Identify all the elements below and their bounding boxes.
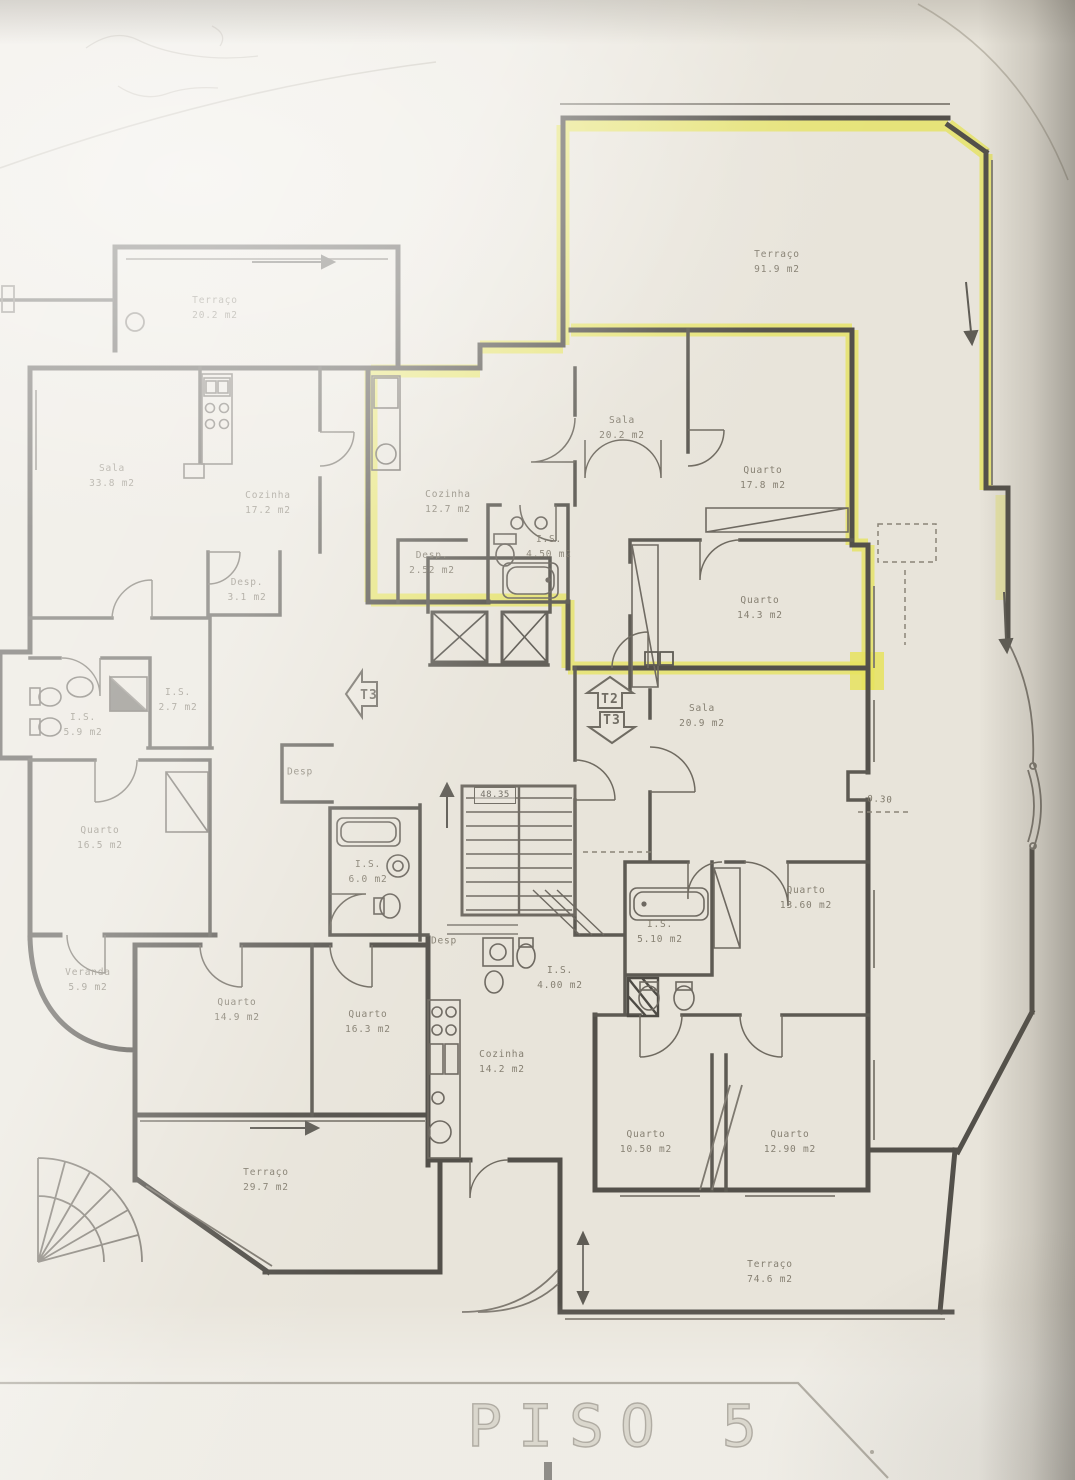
room-name: Terraço	[243, 1165, 289, 1180]
room-area: 2.7 m2	[158, 700, 197, 715]
room-area: 33.8 m2	[89, 476, 135, 491]
room-label: Cozinha 17.2 m2	[245, 488, 291, 518]
room-area: 17.8 m2	[740, 478, 786, 493]
room-name: Desp	[431, 933, 457, 948]
room-label: Sala 20.9 m2	[679, 701, 725, 731]
room-label: Sala 20.2 m2	[599, 413, 645, 443]
room-name: Quarto	[214, 995, 260, 1010]
room-label: Quarto 13.60 m2	[780, 883, 832, 913]
room-area: 74.6 m2	[747, 1272, 793, 1287]
room-area: 16.3 m2	[345, 1022, 391, 1037]
room-name: Quarto	[737, 593, 783, 608]
room-name: Terraço	[192, 293, 238, 308]
room-name: Sala	[599, 413, 645, 428]
room-name: Quarto	[345, 1007, 391, 1022]
room-name: I.S.	[158, 685, 197, 700]
room-label: Quarto 16.5 m2	[77, 823, 123, 853]
room-name: Quarto	[780, 883, 832, 898]
room-area: 5.9 m2	[65, 980, 111, 995]
room-area: 16.5 m2	[77, 838, 123, 853]
room-label: Desp	[287, 764, 313, 779]
room-name: Cozinha	[479, 1047, 525, 1062]
floorplan-photo: T3T2T3 Terraço 20.2 m2 Terraço 91.9 m2 S…	[0, 0, 1075, 1480]
room-label: Desp. 2.52 m2	[409, 548, 455, 578]
room-name: I.S.	[63, 710, 102, 725]
room-name: I.S.	[637, 917, 683, 932]
room-label: Terraço 91.9 m2	[754, 247, 800, 277]
room-area: 91.9 m2	[754, 262, 800, 277]
dimension-label: 0.30	[860, 794, 900, 806]
room-name: Cozinha	[245, 488, 291, 503]
room-name: Quarto	[620, 1127, 672, 1142]
room-area: 5.10 m2	[637, 932, 683, 947]
room-label: Quarto 10.50 m2	[620, 1127, 672, 1157]
room-label: I.S. 6.0 m2	[348, 857, 387, 887]
room-area: 14.3 m2	[737, 608, 783, 623]
room-label: Sala 33.8 m2	[89, 461, 135, 491]
room-label: Terraço 20.2 m2	[192, 293, 238, 323]
room-label: Cozinha 12.7 m2	[425, 487, 471, 517]
room-area: 20.2 m2	[599, 428, 645, 443]
room-name: Desp	[287, 764, 313, 779]
elevation-marker: 48.35	[474, 787, 516, 804]
room-label: Terraço 74.6 m2	[747, 1257, 793, 1287]
room-area: 2.52 m2	[409, 563, 455, 578]
room-label: I.S. 2.7 m2	[158, 685, 197, 715]
room-area: 10.50 m2	[620, 1142, 672, 1157]
room-label: I.S. 5.10 m2	[637, 917, 683, 947]
room-label: Terraço 29.7 m2	[243, 1165, 289, 1195]
room-label: Quarto 14.9 m2	[214, 995, 260, 1025]
room-area: 14.2 m2	[479, 1062, 525, 1077]
room-name: Sala	[89, 461, 135, 476]
room-label: Quarto 14.3 m2	[737, 593, 783, 623]
room-name: Sala	[679, 701, 725, 716]
room-label: Veranda 5.9 m2	[65, 965, 111, 995]
room-name: Quarto	[740, 463, 786, 478]
room-name: I.S.	[348, 857, 387, 872]
room-name: Terraço	[754, 247, 800, 262]
room-label: Quarto 17.8 m2	[740, 463, 786, 493]
room-label: Desp	[431, 933, 457, 948]
room-label: Quarto 12.90 m2	[764, 1127, 816, 1157]
room-name: Cozinha	[425, 487, 471, 502]
room-name: Quarto	[77, 823, 123, 838]
floor-title: PISO 5	[420, 1392, 820, 1472]
room-name: Veranda	[65, 965, 111, 980]
room-label: Quarto 16.3 m2	[345, 1007, 391, 1037]
room-area: 29.7 m2	[243, 1180, 289, 1195]
room-area: 12.7 m2	[425, 502, 471, 517]
room-area: 4.00 m2	[537, 978, 583, 993]
room-name: Desp.	[227, 575, 266, 590]
room-area: 20.9 m2	[679, 716, 725, 731]
room-area: 20.2 m2	[192, 308, 238, 323]
room-name: Terraço	[747, 1257, 793, 1272]
room-area: 4.50 m2	[526, 547, 572, 562]
room-area: 6.0 m2	[348, 872, 387, 887]
room-labels-layer: Terraço 20.2 m2 Terraço 91.9 m2 Sala 33.…	[0, 0, 1075, 1480]
room-label: I.S. 4.00 m2	[537, 963, 583, 993]
room-area: 3.1 m2	[227, 590, 266, 605]
room-name: Quarto	[764, 1127, 816, 1142]
room-area: 14.9 m2	[214, 1010, 260, 1025]
room-label: Desp. 3.1 m2	[227, 575, 266, 605]
room-name: Desp.	[409, 548, 455, 563]
room-area: 17.2 m2	[245, 503, 291, 518]
room-label: Cozinha 14.2 m2	[479, 1047, 525, 1077]
room-area: 12.90 m2	[764, 1142, 816, 1157]
room-area: 5.9 m2	[63, 725, 102, 740]
room-area: 13.60 m2	[780, 898, 832, 913]
room-name: I.S.	[526, 532, 572, 547]
room-label: I.S. 5.9 m2	[63, 710, 102, 740]
room-label: I.S. 4.50 m2	[526, 532, 572, 562]
room-name: I.S.	[537, 963, 583, 978]
